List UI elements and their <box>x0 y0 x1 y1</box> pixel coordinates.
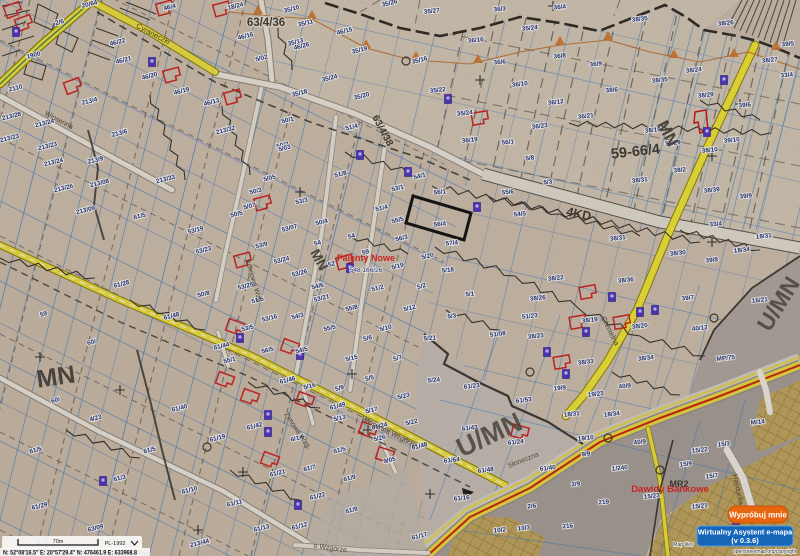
svg-text:N: 52°08′16.5″ E: 20°57′29.4″: N: 52°08′16.5″ E: 20°57′29.4″ N: 476461.… <box>3 550 137 556</box>
svg-text:(v 0.3.6): (v 0.3.6) <box>731 536 759 545</box>
svg-text:70m: 70m <box>53 539 64 545</box>
svg-text:openstreetmap.org/copyright: openstreetmap.org/copyright <box>733 549 797 555</box>
svg-text:Map tiles: Map tiles <box>673 542 694 548</box>
svg-text:PL-1992: PL-1992 <box>105 541 126 547</box>
svg-text:Wypróbuj mnie: Wypróbuj mnie <box>729 511 787 520</box>
